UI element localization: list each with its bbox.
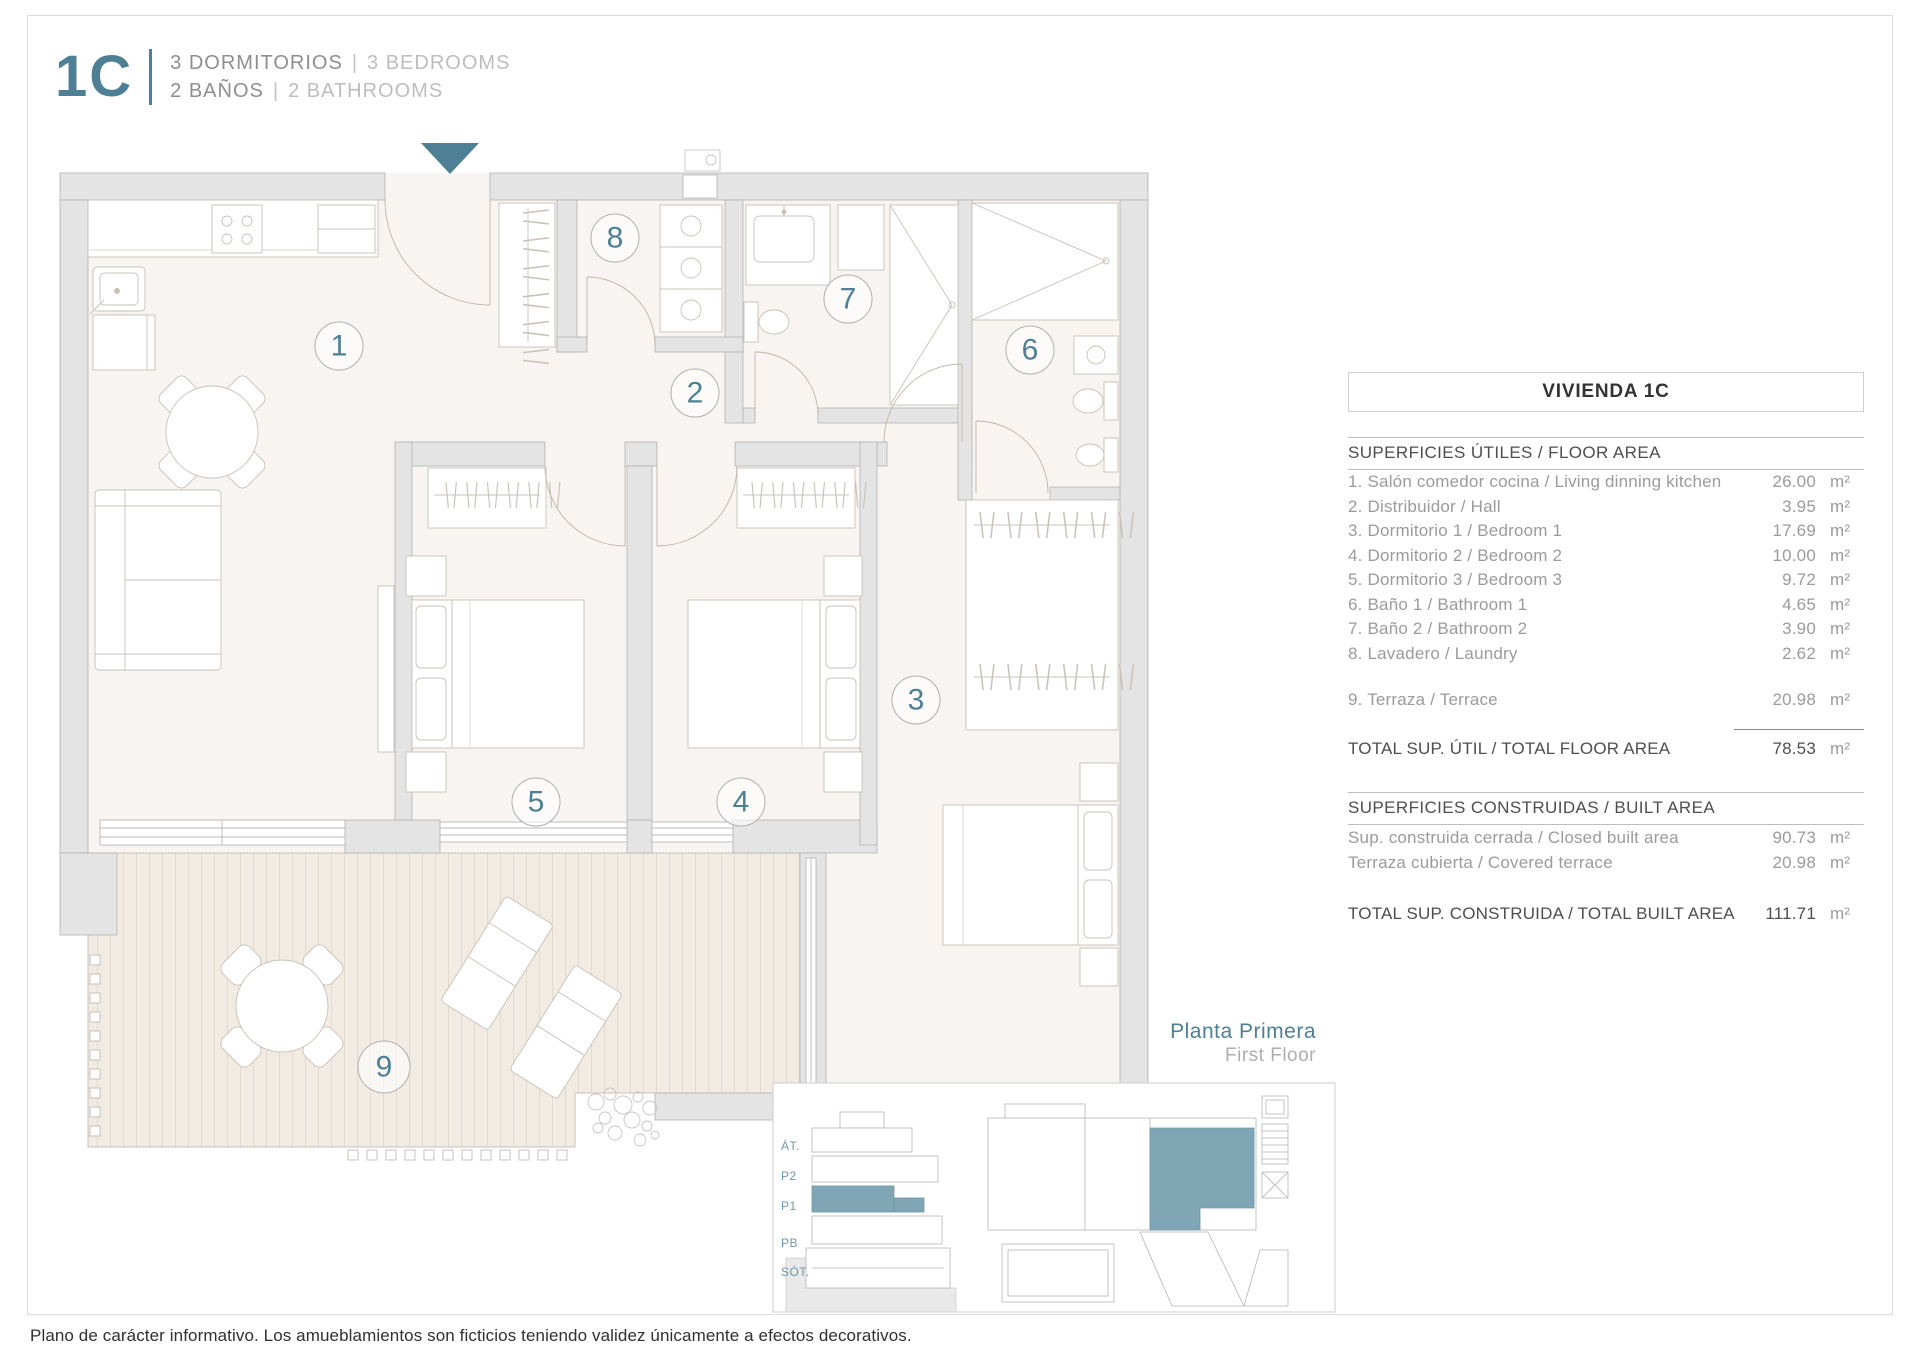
table-row-covered-terrace: Terraza cubierta / Covered terrace20.98m… (1348, 850, 1864, 875)
floor-name-es: Planta Primera (1170, 1020, 1316, 1044)
disclaimer-text: Plano de carácter informativo. Los amueb… (30, 1326, 912, 1346)
floor-area-section-header: SUPERFICIES ÚTILES / FLOOR AREA (1348, 437, 1864, 470)
unit-code: 1C (55, 48, 133, 106)
table-row-bedroom3: 5. Dormitorio 3 / Bedroom 39.72m² (1348, 568, 1864, 593)
table-row-bedroom2: 4. Dormitorio 2 / Bedroom 210.00m² (1348, 544, 1864, 569)
separator: | (352, 52, 358, 74)
title-divider (149, 49, 152, 105)
bedrooms-label-es: 3 DORMITORIOS (170, 52, 343, 74)
floor-name-en: First Floor (1170, 1044, 1316, 1068)
title-subtitle: 3 DORMITORIOS|3 BEDROOMS 2 BAÑOS|2 BATHR… (170, 49, 510, 105)
bathrooms-label-en: 2 BATHROOMS (288, 80, 443, 102)
table-row-total-floor-area: TOTAL SUP. ÚTIL / TOTAL FLOOR AREA78.53m… (1348, 736, 1864, 762)
area-table: VIVIENDA 1C SUPERFICIES ÚTILES / FLOOR A… (1348, 372, 1864, 927)
bedrooms-label-en: 3 BEDROOMS (367, 52, 510, 74)
table-title-box: VIVIENDA 1C (1348, 372, 1864, 412)
table-title: VIVIENDA 1C (1542, 381, 1669, 402)
table-row-terrace: 9. Terraza / Terrace20.98m² (1348, 688, 1864, 713)
table-row-bedroom1: 3. Dormitorio 1 / Bedroom 117.69m² (1348, 519, 1864, 544)
floor-name-label: Planta Primera First Floor (1170, 1020, 1316, 1068)
title-block: 1C 3 DORMITORIOS|3 BEDROOMS 2 BAÑOS|2 BA… (55, 48, 510, 106)
table-row-laundry: 8. Lavadero / Laundry2.62m² (1348, 642, 1864, 667)
built-area-section-header: SUPERFICIES CONSTRUIDAS / BUILT AREA (1348, 792, 1864, 825)
table-row-bath1: 6. Baño 1 / Bathroom 14.65m² (1348, 593, 1864, 618)
separator: | (273, 80, 279, 102)
table-row-bath2: 7. Baño 2 / Bathroom 23.90m² (1348, 617, 1864, 642)
table-row-total-built-area: TOTAL SUP. CONSTRUIDA / TOTAL BUILT AREA… (1348, 901, 1864, 927)
bathrooms-label-es: 2 BAÑOS (170, 80, 264, 102)
total-divider-line (1734, 729, 1864, 730)
table-row-living: 1. Salón comedor cocina / Living dinning… (1348, 470, 1864, 495)
table-row-hall: 2. Distribuidor / Hall3.95m² (1348, 495, 1864, 520)
table-row-closed-built: Sup. construida cerrada / Closed built a… (1348, 825, 1864, 850)
